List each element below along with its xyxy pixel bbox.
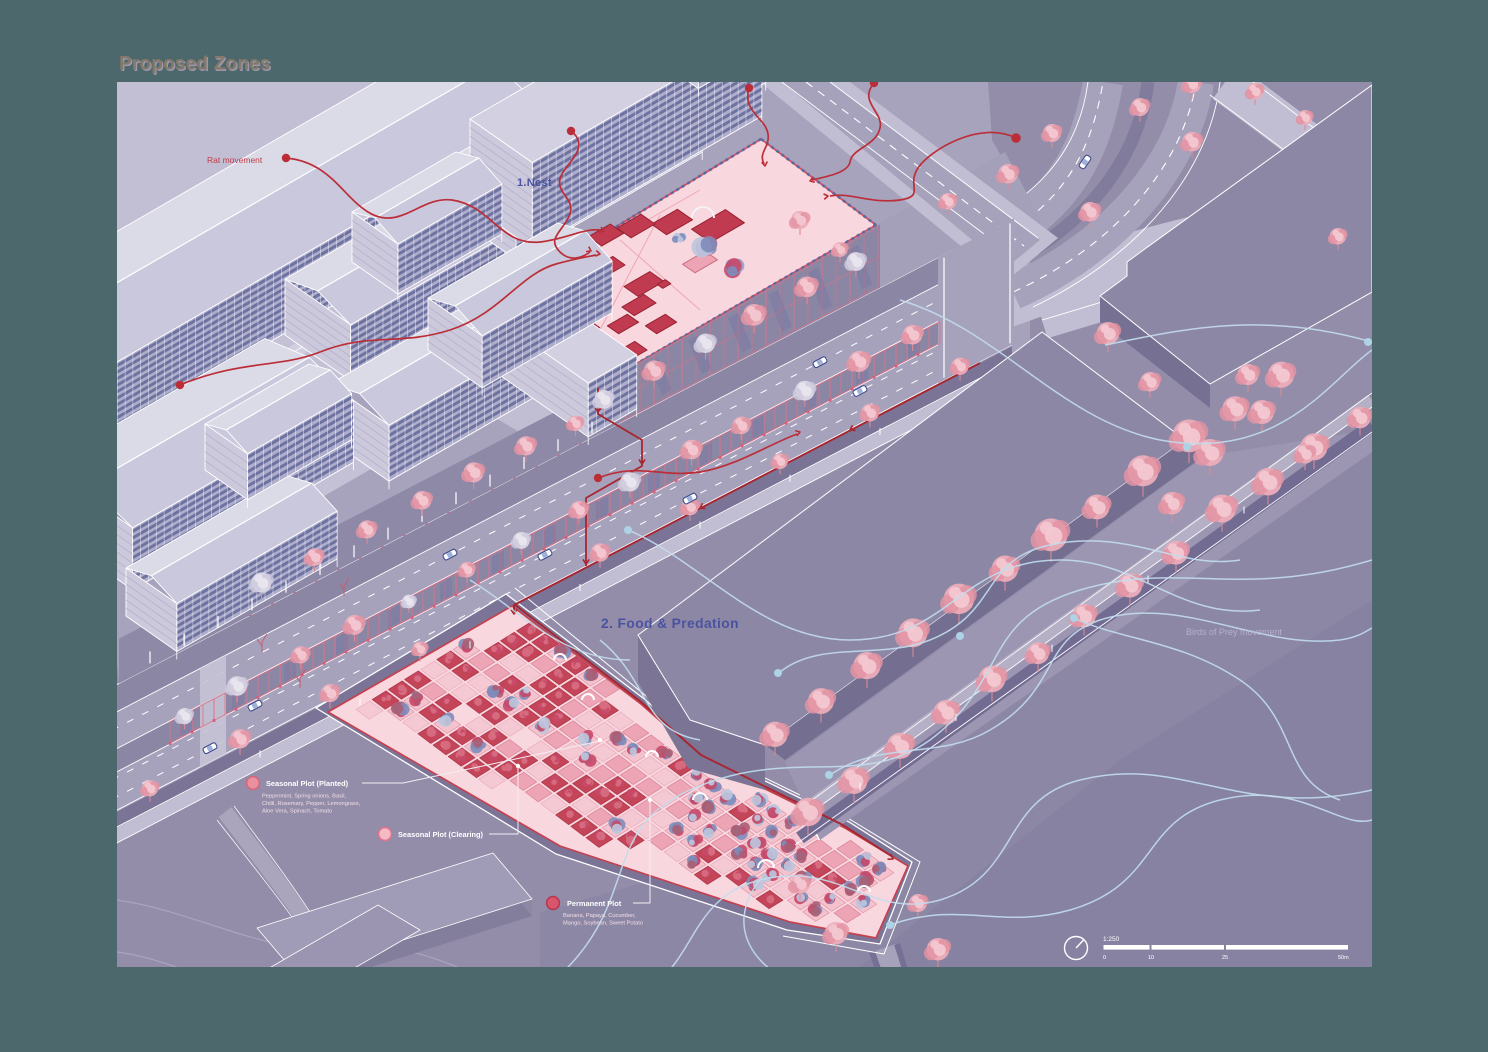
svg-text:Aloe Vera, Spinach, Tomato: Aloe Vera, Spinach, Tomato — [262, 809, 332, 815]
svg-text:Rat movement: Rat movement — [207, 155, 263, 165]
svg-text:10: 10 — [1148, 955, 1154, 961]
svg-text:1:250: 1:250 — [1103, 936, 1120, 943]
svg-text:Chilli, Rosemary, Pepper, Lemo: Chilli, Rosemary, Pepper, Lemongrass, — [262, 801, 361, 807]
svg-text:Proposed Zones: Proposed Zones — [119, 53, 271, 74]
svg-text:2. Food & Predation: 2. Food & Predation — [601, 616, 739, 631]
svg-text:50m: 50m — [1338, 955, 1349, 961]
svg-text:Birds of Prey movement: Birds of Prey movement — [1186, 627, 1283, 637]
svg-text:25: 25 — [1222, 955, 1228, 961]
svg-text:0: 0 — [1103, 955, 1106, 961]
svg-text:Mango, Soybean, Sweet Potato: Mango, Soybean, Sweet Potato — [563, 921, 643, 927]
svg-text:Peppermint, Spring onions, Bas: Peppermint, Spring onions, Basil, — [262, 794, 347, 800]
svg-text:Seasonal Plot (Planted): Seasonal Plot (Planted) — [266, 779, 349, 788]
svg-text:Seasonal Plot (Clearing): Seasonal Plot (Clearing) — [398, 830, 484, 839]
svg-text:Banana, Papaya, Cucumber,: Banana, Papaya, Cucumber, — [563, 913, 636, 919]
svg-text:Permanent Plot: Permanent Plot — [567, 899, 622, 908]
svg-text:1.Nest: 1.Nest — [517, 177, 552, 189]
